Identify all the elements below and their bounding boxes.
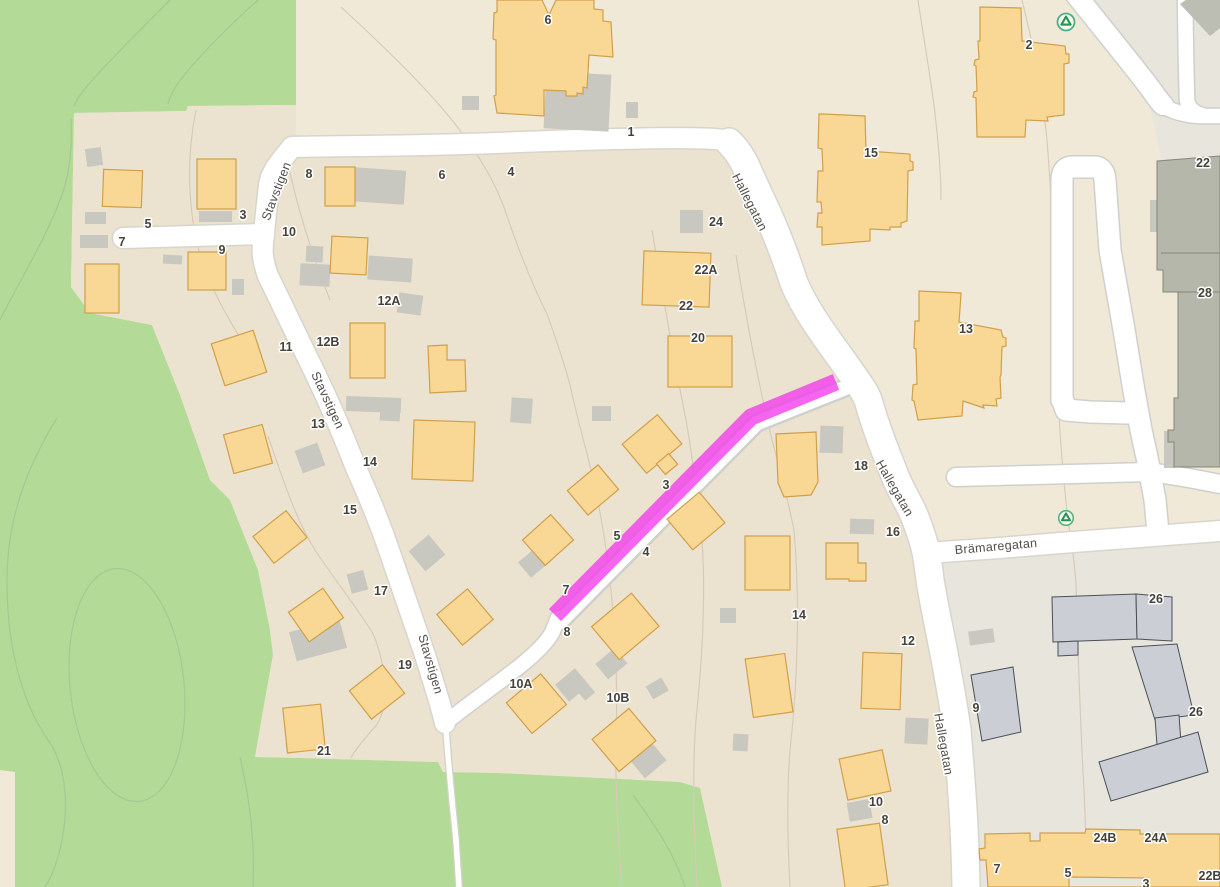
svg-text:3: 3 [663,478,670,492]
svg-text:28: 28 [1198,286,1212,300]
svg-text:13: 13 [311,417,325,431]
svg-text:26: 26 [1189,705,1203,719]
svg-text:8: 8 [564,625,571,639]
svg-text:2: 2 [1026,38,1033,52]
svg-text:21: 21 [317,744,331,758]
svg-text:24: 24 [709,215,723,229]
svg-text:14: 14 [792,608,806,622]
svg-text:24B: 24B [1094,831,1117,845]
svg-text:1: 1 [628,125,635,139]
svg-text:26: 26 [1149,592,1163,606]
svg-text:22A: 22A [695,263,718,277]
svg-text:15: 15 [343,503,357,517]
svg-text:20: 20 [691,331,705,345]
svg-text:5: 5 [145,217,152,231]
svg-text:16: 16 [886,525,900,539]
svg-text:7: 7 [119,235,126,249]
svg-text:12A: 12A [378,294,401,308]
svg-text:4: 4 [508,165,515,179]
svg-text:13: 13 [959,322,973,336]
svg-text:14: 14 [363,455,377,469]
svg-text:7: 7 [994,862,1001,876]
svg-text:5: 5 [1065,866,1072,880]
svg-text:12B: 12B [317,335,340,349]
svg-text:15: 15 [864,146,878,160]
svg-text:22: 22 [679,299,693,313]
svg-text:3: 3 [240,208,247,222]
svg-text:6: 6 [439,168,446,182]
svg-text:5: 5 [614,529,621,543]
svg-text:10B: 10B [607,691,630,705]
svg-text:12: 12 [901,634,915,648]
svg-text:22: 22 [1196,156,1210,170]
svg-text:10A: 10A [510,677,533,691]
svg-text:9: 9 [973,701,980,715]
svg-text:8: 8 [882,813,889,827]
svg-text:3: 3 [1143,877,1150,887]
svg-text:22B: 22B [1199,869,1220,883]
svg-text:24A: 24A [1145,831,1168,845]
svg-text:11: 11 [279,340,292,354]
svg-text:19: 19 [398,658,412,672]
svg-text:7: 7 [563,583,570,597]
svg-text:4: 4 [643,545,650,559]
svg-text:6: 6 [545,13,552,27]
svg-text:10: 10 [282,225,296,239]
svg-text:9: 9 [219,243,226,257]
svg-text:18: 18 [854,459,868,473]
svg-text:17: 17 [374,584,388,598]
svg-text:8: 8 [306,167,313,181]
svg-text:10: 10 [869,795,883,809]
